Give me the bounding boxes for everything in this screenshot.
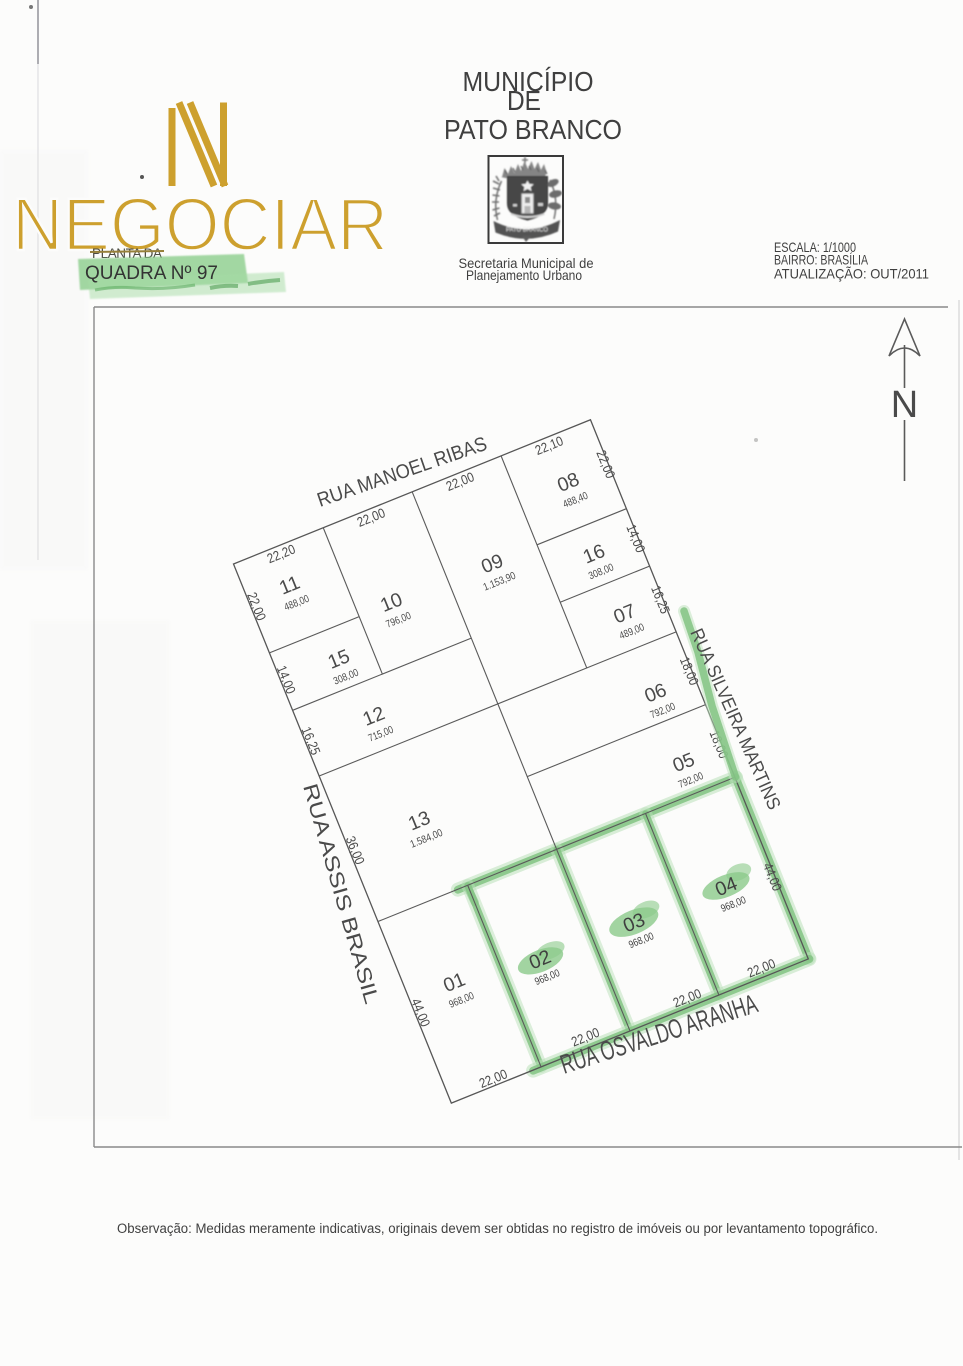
svg-text:Planejamento Urbano: Planejamento Urbano — [466, 267, 582, 283]
svg-text:PATO BRANCO: PATO BRANCO — [444, 114, 622, 145]
svg-text:PATO BRANCO: PATO BRANCO — [506, 227, 548, 234]
svg-text:QUADRA Nº 97: QUADRA Nº 97 — [85, 263, 218, 284]
svg-text:N: N — [891, 384, 918, 426]
svg-text:DE: DE — [507, 85, 541, 116]
svg-text:ATUALIZAÇÃO: OUT/2011: ATUALIZAÇÃO: OUT/2011 — [774, 266, 929, 282]
svg-text:NEGOCIAR: NEGOCIAR — [12, 183, 388, 266]
svg-text:Observação: Medidas meramente: Observação: Medidas meramente indicativa… — [117, 1221, 878, 1236]
